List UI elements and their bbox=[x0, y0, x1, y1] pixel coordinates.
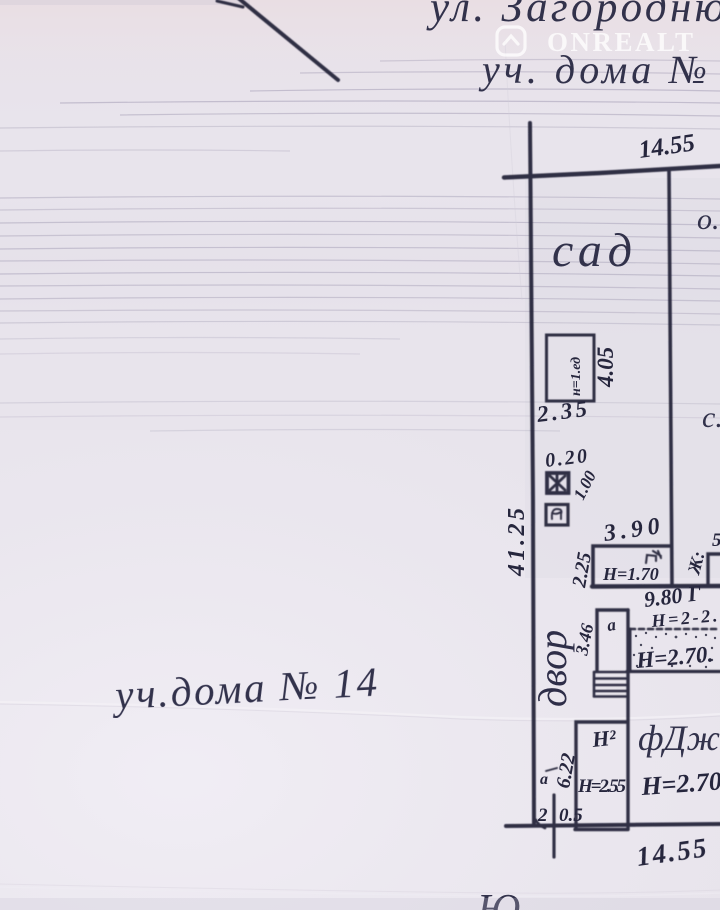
svg-text:Н=2.70: Н=2.70 bbox=[639, 766, 720, 801]
svg-text:0.5: 0.5 bbox=[559, 805, 583, 826]
svg-text:о.: о. bbox=[697, 203, 720, 236]
svg-text:н=1.ед: н=1.ед bbox=[569, 357, 584, 396]
svg-text:2: 2 bbox=[537, 805, 548, 826]
svg-text:Н=1.70: Н=1.70 bbox=[602, 564, 659, 584]
svg-text:сад: сад bbox=[552, 224, 632, 277]
svg-text:ONREALT: ONREALT bbox=[547, 27, 696, 57]
svg-text:а: а bbox=[540, 771, 548, 788]
svg-text:двор: двор bbox=[530, 630, 575, 707]
svg-text:4.05: 4.05 bbox=[593, 347, 618, 388]
svg-text:фДже: фДже bbox=[638, 718, 720, 758]
svg-text:Н=2.55: Н=2.55 bbox=[577, 776, 627, 797]
svg-text:Н²: Н² bbox=[590, 725, 618, 752]
svg-text:5: 5 bbox=[712, 530, 720, 551]
svg-text:41.25: 41.25 bbox=[504, 508, 530, 577]
svg-text:с.: с. bbox=[702, 401, 720, 434]
